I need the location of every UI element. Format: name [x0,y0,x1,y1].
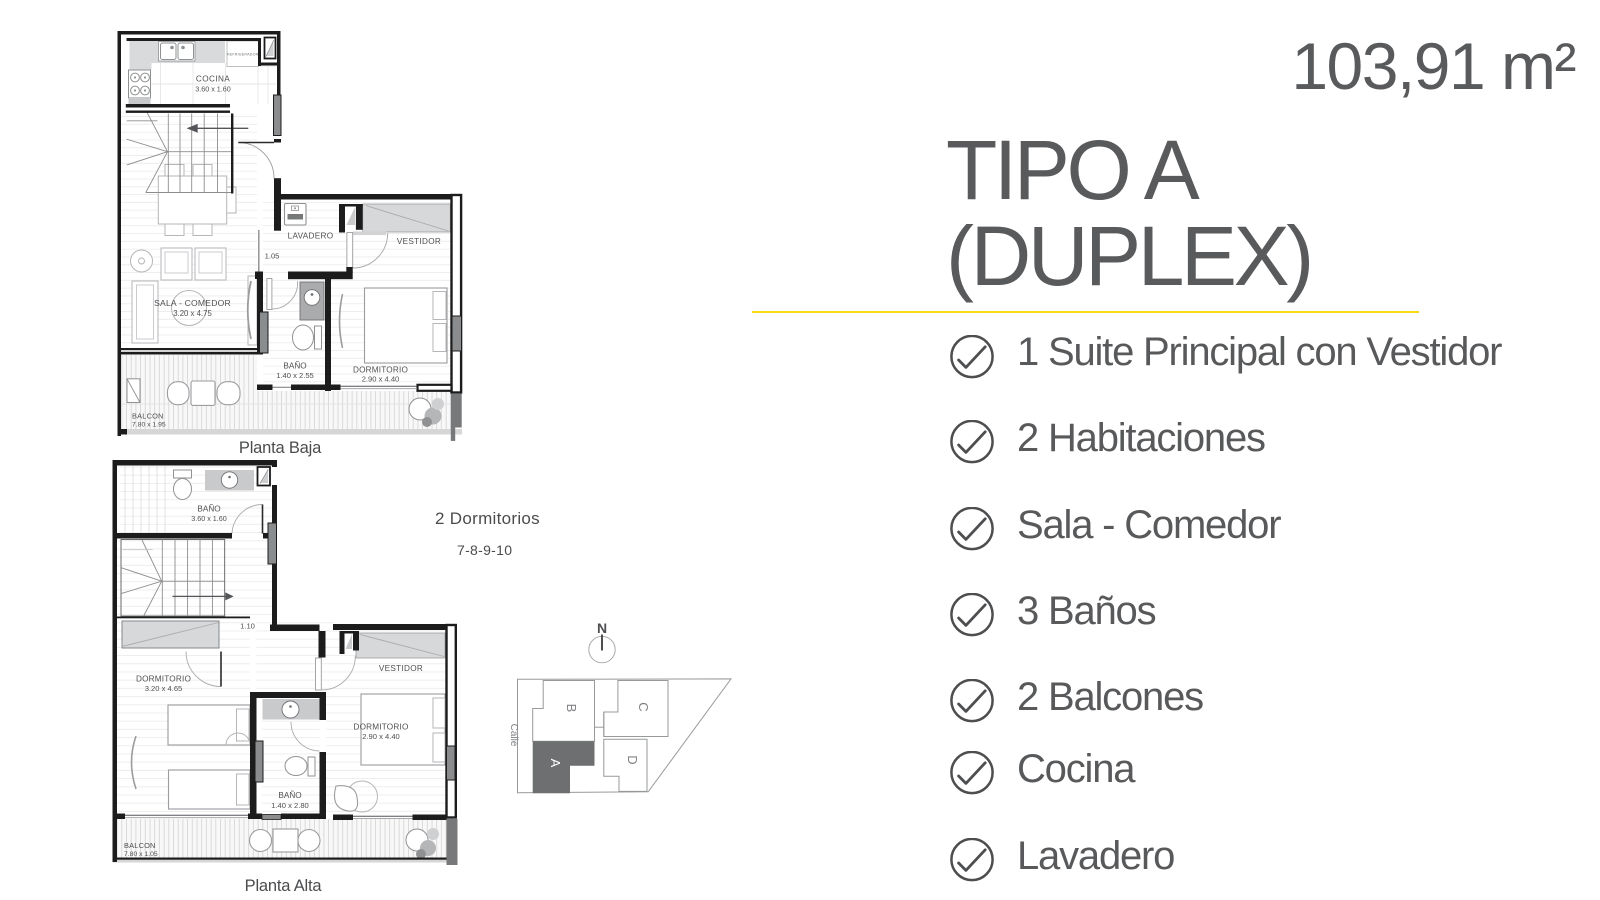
svg-text:BALCON: BALCON [132,412,164,421]
svg-text:DORMITORIO: DORMITORIO [353,723,408,732]
svg-text:2.90 x 4.40: 2.90 x 4.40 [362,732,400,741]
svg-text:COCINA: COCINA [196,75,230,84]
svg-text:B: B [564,704,579,713]
svg-text:N: N [597,620,607,636]
svg-text:D: D [625,755,640,764]
svg-text:7.80 x 1.05: 7.80 x 1.05 [124,851,158,858]
svg-text:1.10: 1.10 [240,622,255,631]
svg-text:3.20 x 4.75: 3.20 x 4.75 [173,309,212,318]
svg-text:7.80 x 1.95: 7.80 x 1.95 [132,422,166,429]
svg-text:C: C [636,702,651,711]
svg-text:Calle: Calle [508,724,519,747]
svg-text:3.20 x 4.65: 3.20 x 4.65 [145,684,183,693]
svg-text:1.40 x 2.55: 1.40 x 2.55 [276,371,314,380]
svg-text:BAÑO: BAÑO [283,361,306,371]
svg-text:BAÑO: BAÑO [197,504,220,514]
svg-text:1.05: 1.05 [265,252,280,261]
svg-text:BALCON: BALCON [124,841,156,850]
svg-text:SALA - COMEDOR: SALA - COMEDOR [154,298,231,308]
svg-text:A: A [548,759,563,768]
svg-text:REFRIGERADOR: REFRIGERADOR [227,53,259,57]
svg-text:3.60 x 1.60: 3.60 x 1.60 [191,514,227,523]
svg-text:DORMITORIO: DORMITORIO [136,675,191,684]
svg-text:BAÑO: BAÑO [278,790,301,800]
svg-text:VESTIDOR: VESTIDOR [379,664,423,673]
svg-text:1.40 x 2.80: 1.40 x 2.80 [271,801,309,810]
svg-text:VESTIDOR: VESTIDOR [397,237,441,246]
svg-text:2.90 x 4.40: 2.90 x 4.40 [362,375,400,384]
svg-text:3.60 x 1.60: 3.60 x 1.60 [195,85,231,94]
svg-text:LAVADERO: LAVADERO [288,232,334,241]
svg-text:DORMITORIO: DORMITORIO [353,366,408,375]
